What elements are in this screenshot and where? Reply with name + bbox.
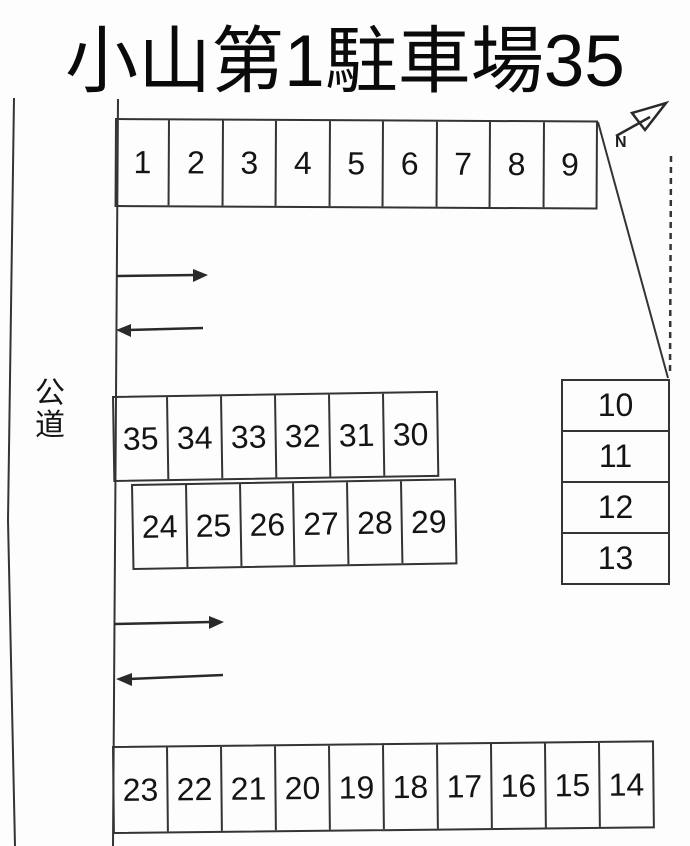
parking-space-34: 34 bbox=[166, 396, 221, 479]
parking-space-24: 24 bbox=[133, 485, 186, 568]
parking-space-18: 18 bbox=[382, 745, 437, 830]
flow-arrow-left-upper bbox=[116, 324, 203, 337]
parking-space-25: 25 bbox=[185, 484, 240, 567]
parking-space-11: 11 bbox=[563, 430, 668, 481]
parking-column-right: 10 11 12 13 bbox=[561, 379, 670, 585]
parking-space-6: 6 bbox=[382, 121, 436, 206]
parking-space-13: 13 bbox=[563, 532, 668, 583]
parking-space-12: 12 bbox=[563, 481, 668, 532]
parking-space-28: 28 bbox=[346, 481, 401, 564]
parking-space-20: 20 bbox=[274, 746, 329, 831]
parking-space-21: 21 bbox=[220, 746, 275, 831]
parking-space-1: 1 bbox=[117, 120, 169, 205]
parking-row-top: 1 2 3 4 5 6 7 8 9 bbox=[115, 118, 598, 210]
parking-map: 小山第1駐車場35 公道 bbox=[0, 0, 690, 846]
parking-space-3: 3 bbox=[221, 121, 275, 206]
parking-space-16: 16 bbox=[490, 743, 545, 828]
parking-space-10: 10 bbox=[563, 381, 668, 430]
parking-space-32: 32 bbox=[274, 395, 329, 478]
public-road-label: 公道 bbox=[33, 378, 67, 443]
parking-space-22: 22 bbox=[166, 747, 221, 832]
flow-arrow-right-lower bbox=[114, 616, 224, 629]
parking-space-4: 4 bbox=[275, 121, 329, 206]
parking-space-26: 26 bbox=[239, 483, 294, 566]
flow-arrow-left-lower bbox=[116, 673, 223, 686]
parking-space-31: 31 bbox=[328, 394, 383, 477]
dashed-boundary-line bbox=[670, 156, 671, 376]
parking-space-5: 5 bbox=[328, 121, 382, 206]
lot-boundary-slant-line bbox=[598, 122, 668, 378]
parking-space-29: 29 bbox=[400, 480, 455, 563]
flow-arrow-right-upper bbox=[117, 269, 208, 282]
parking-row-bottom: 23 22 21 20 19 18 17 16 15 14 bbox=[112, 740, 655, 834]
parking-space-33: 33 bbox=[220, 395, 275, 478]
parking-space-35: 35 bbox=[114, 397, 167, 480]
parking-space-19: 19 bbox=[328, 745, 383, 830]
parking-space-8: 8 bbox=[489, 122, 543, 207]
parking-space-15: 15 bbox=[544, 743, 599, 828]
parking-space-30: 30 bbox=[382, 393, 437, 476]
north-label: N bbox=[615, 134, 627, 152]
parking-space-23: 23 bbox=[114, 747, 167, 832]
parking-space-14: 14 bbox=[598, 742, 653, 827]
parking-space-27: 27 bbox=[292, 482, 347, 565]
parking-space-9: 9 bbox=[542, 122, 596, 207]
parking-space-2: 2 bbox=[168, 120, 222, 205]
parking-row-middle-upper: 35 34 33 32 31 30 bbox=[112, 391, 439, 482]
parking-row-middle-lower: 24 25 26 27 28 29 bbox=[131, 478, 457, 570]
north-arrow-icon bbox=[616, 103, 666, 136]
parking-space-7: 7 bbox=[435, 122, 489, 207]
public-road-line bbox=[8, 98, 15, 846]
parking-space-17: 17 bbox=[436, 744, 491, 829]
